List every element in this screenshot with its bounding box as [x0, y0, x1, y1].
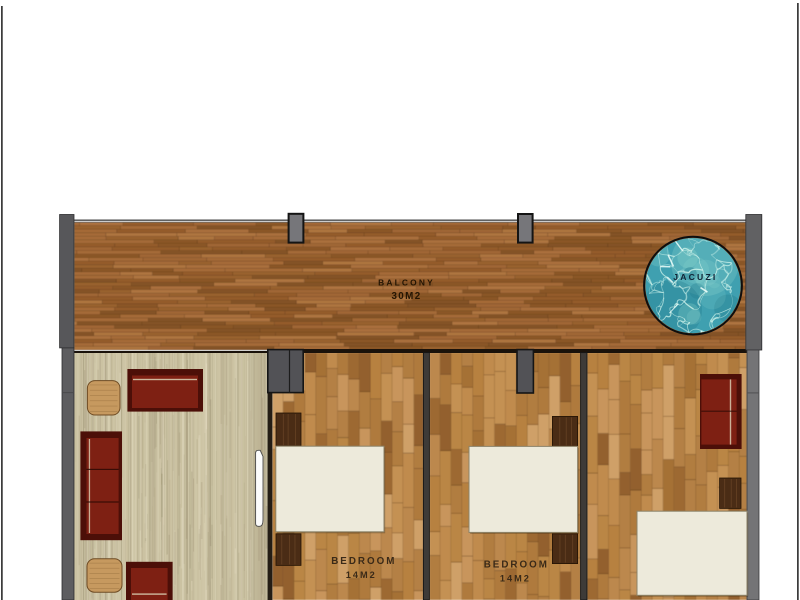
svg-text:14M2: 14M2: [500, 573, 531, 583]
svg-text:BEDROOM: BEDROOM: [484, 560, 549, 571]
svg-text:BEDROOM: BEDROOM: [331, 556, 396, 567]
svg-text:30M2: 30M2: [391, 291, 421, 302]
svg-text:JACUZI: JACUZI: [673, 272, 717, 282]
svg-text:BALCONY: BALCONY: [378, 277, 435, 287]
svg-text:14M2: 14M2: [346, 570, 377, 580]
